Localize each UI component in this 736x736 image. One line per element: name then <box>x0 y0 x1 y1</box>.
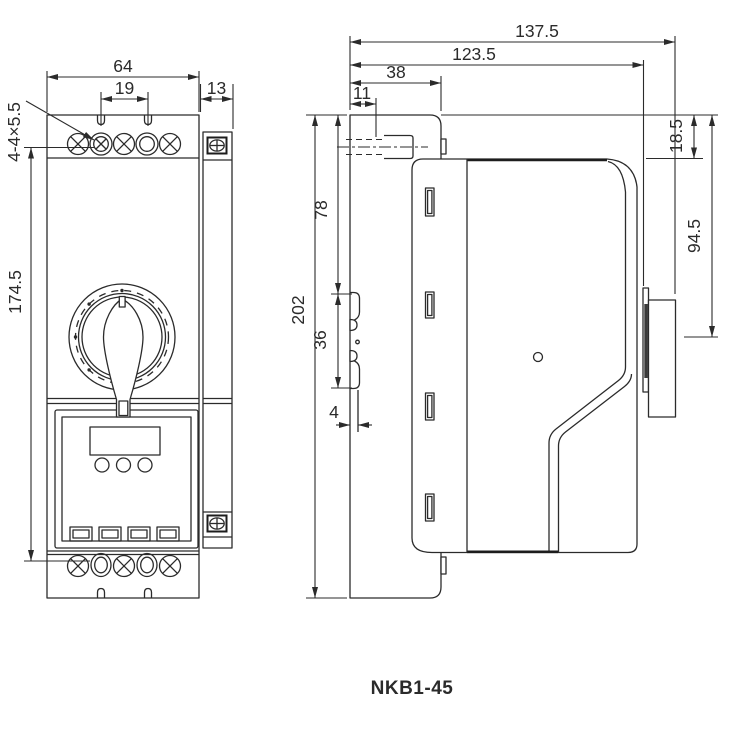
side-view: 137.5 123.5 38 11 202 78 <box>288 21 718 598</box>
dim-label: 4-4×5.5 <box>4 102 24 162</box>
base-tab-top <box>441 139 446 154</box>
dim-body-top-inset: 18.5 <box>646 115 703 159</box>
dim-label: 64 <box>113 56 133 76</box>
handle-knob-box <box>649 300 676 417</box>
dim-label: 137.5 <box>515 21 559 41</box>
front-view: 64 19 13 4-4×5.5 174.5 <box>4 56 233 598</box>
control-panel <box>55 410 198 548</box>
dim-label: 202 <box>288 295 308 324</box>
dim-label: 18.5 <box>666 119 686 153</box>
dim-label: 78 <box>311 200 331 219</box>
knob-index-dot <box>87 368 90 371</box>
mounting-bracket <box>203 132 232 548</box>
bracket-screw-bottom-icon <box>208 516 227 532</box>
bracket-screw-top-icon <box>208 138 227 154</box>
dim-label: 36 <box>310 330 330 349</box>
side-body <box>412 159 637 553</box>
dim-label: 174.5 <box>5 270 25 314</box>
dim-bracket-width: 13 <box>201 78 234 129</box>
handle-side-profile <box>643 288 676 417</box>
base-tab-bottom <box>441 557 446 574</box>
dim-label: 4 <box>329 402 339 422</box>
knob-index-dot <box>120 289 123 292</box>
dim-label: 13 <box>207 78 226 98</box>
knob-index-dot <box>87 302 90 305</box>
knob-index-dot <box>74 335 77 338</box>
dim-label: 38 <box>386 62 405 82</box>
dim-label: 94.5 <box>684 219 704 253</box>
side-body-outline <box>412 159 637 553</box>
model-label: NKB1-45 <box>371 678 454 699</box>
dimension-drawing: 64 19 13 4-4×5.5 174.5 <box>0 0 736 736</box>
mounting-hole-icon <box>90 133 112 155</box>
dim-label: 123.5 <box>452 44 496 64</box>
handle-top-tab <box>119 297 125 308</box>
drawing-sheet: 64 19 13 4-4×5.5 174.5 <box>0 0 736 736</box>
handle-gap-shadow <box>644 304 648 378</box>
bracket-strip <box>203 132 232 548</box>
dim-label: 11 <box>353 83 371 103</box>
dim-rail-slot-height: 36 <box>310 294 352 388</box>
dim-label: 19 <box>115 78 134 98</box>
